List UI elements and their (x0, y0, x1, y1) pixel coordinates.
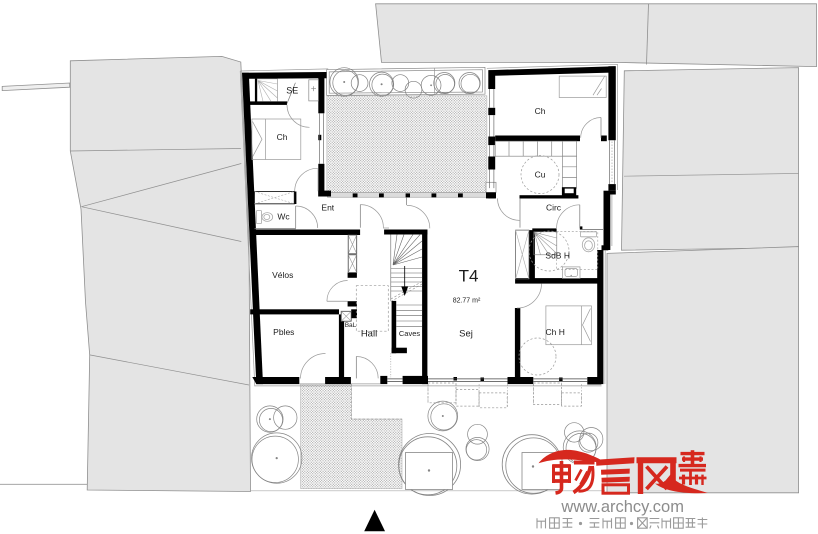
svg-text:Caves: Caves (399, 329, 421, 338)
svg-text:Ent: Ent (321, 203, 334, 213)
svg-text:Sej: Sej (459, 329, 473, 340)
svg-text:T4: T4 (459, 267, 479, 286)
svg-text:82.77 m²: 82.77 m² (453, 297, 481, 304)
svg-text:Ch H: Ch H (546, 327, 565, 337)
svg-text:Cu: Cu (535, 170, 546, 180)
svg-text:SdB H: SdB H (545, 250, 570, 260)
svg-text:SE: SE (286, 86, 298, 96)
svg-text:Vélos: Vélos (272, 270, 293, 280)
svg-text:Ch: Ch (277, 132, 288, 142)
svg-text:Pbles: Pbles (273, 327, 294, 337)
svg-text:Hall: Hall (361, 329, 377, 340)
svg-text:Wc: Wc (277, 212, 290, 222)
svg-text:Circ: Circ (546, 203, 562, 213)
svg-text:BaL: BaL (345, 322, 357, 329)
svg-text:Ch: Ch (535, 106, 546, 116)
svg-text:www.archcy.com: www.archcy.com (560, 498, 684, 516)
